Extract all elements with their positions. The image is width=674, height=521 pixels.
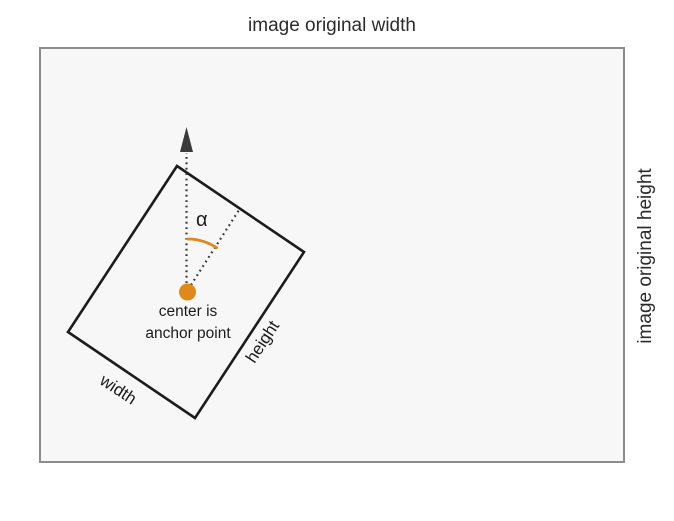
up-arrow-icon [180,127,193,152]
center-anchor-dot [179,284,196,301]
angle-alpha-label: α [196,209,208,232]
rotation-diagram: image original width image original heig… [0,0,674,521]
angle-arc [188,239,217,248]
diagram-shapes [0,0,674,521]
center-anchor-caption-line1: center is [145,301,230,323]
center-anchor-caption-line2: anchor point [145,323,230,345]
center-anchor-caption: center is anchor point [145,301,230,345]
